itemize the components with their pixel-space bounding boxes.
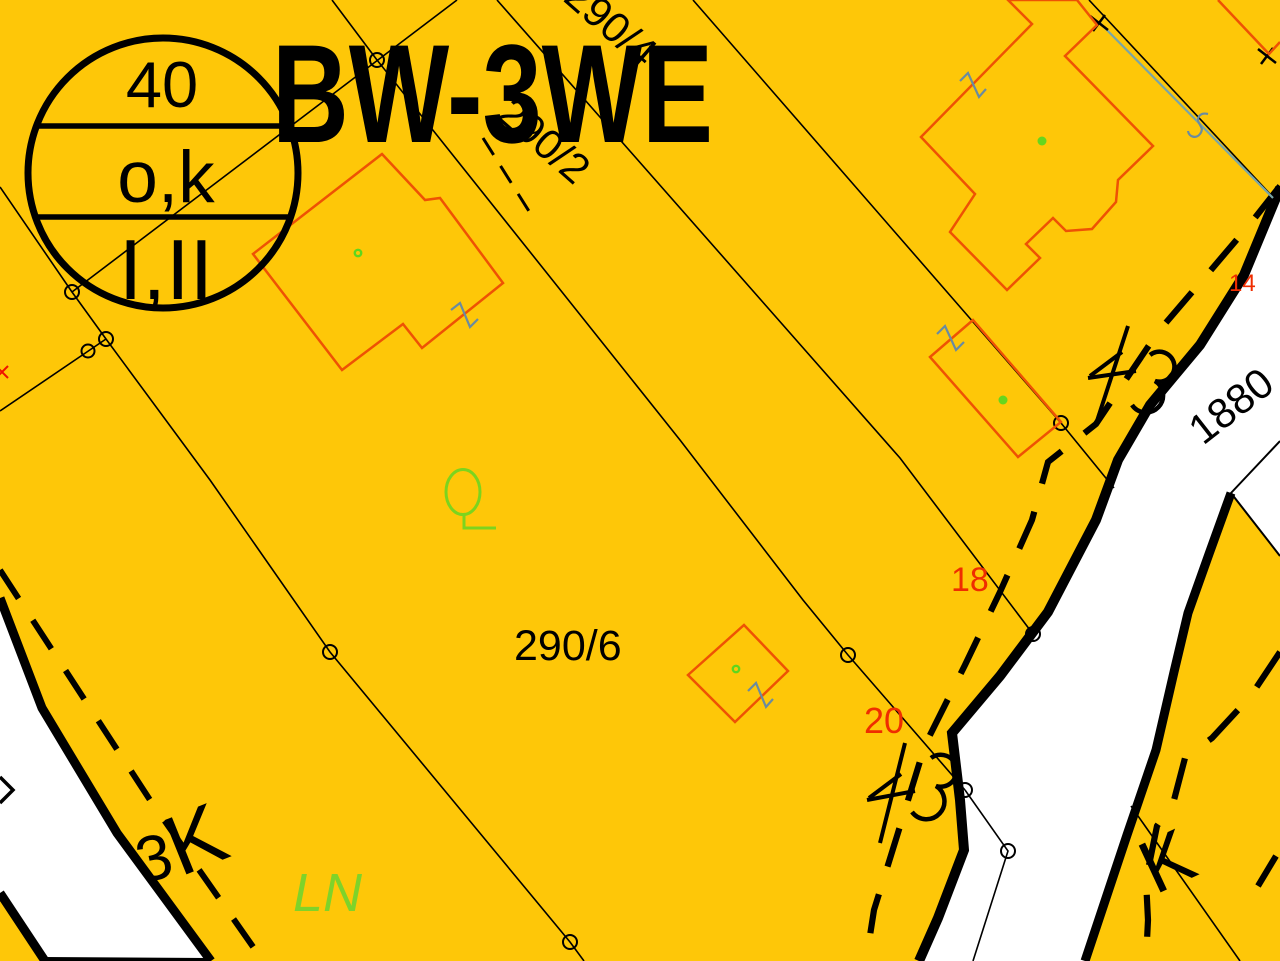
svg-text:18: 18 bbox=[951, 561, 989, 599]
svg-text:20: 20 bbox=[864, 700, 904, 741]
svg-text:o,k: o,k bbox=[117, 137, 215, 218]
svg-text:I,II: I,II bbox=[119, 223, 213, 318]
svg-text:40: 40 bbox=[126, 48, 198, 121]
svg-text:LN: LN bbox=[293, 863, 363, 923]
svg-text:290/6: 290/6 bbox=[514, 622, 622, 670]
svg-text:14: 14 bbox=[1229, 270, 1256, 297]
